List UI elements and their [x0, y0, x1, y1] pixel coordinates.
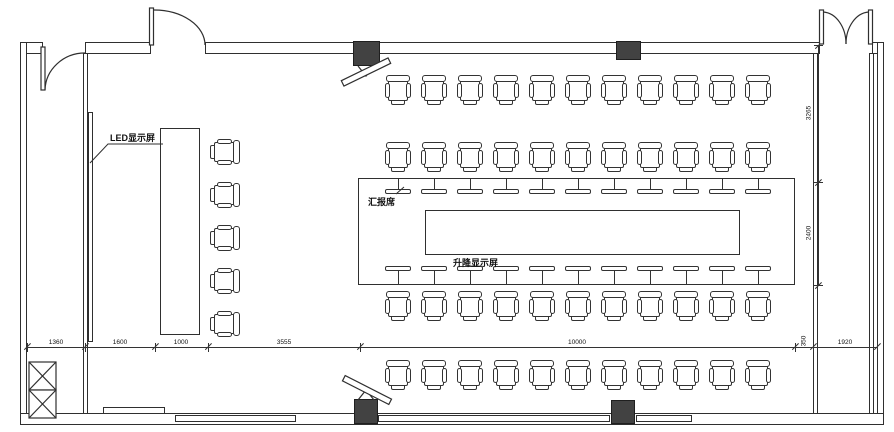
chair [493, 142, 519, 172]
chair-seat [532, 147, 552, 168]
chair-arm-l [673, 299, 678, 314]
chair-back [710, 142, 734, 149]
seat-unit-plate [673, 189, 699, 194]
seat-unit-plate [529, 266, 555, 271]
chair-arm-l [217, 139, 232, 144]
chair-arm-l [217, 225, 232, 230]
chair-arm-r [586, 83, 591, 98]
seat-unit-plate [601, 189, 627, 194]
chair-arm-r [658, 368, 663, 383]
chair-seat [748, 80, 768, 101]
led-screen-label: LED显示屏 [110, 131, 155, 144]
wall-right-outer [877, 42, 884, 425]
chair [529, 291, 555, 321]
chair [493, 291, 519, 321]
chair-arm-r [730, 83, 735, 98]
chair [601, 142, 627, 172]
chair-arm-r [658, 299, 663, 314]
chair-back [494, 360, 518, 367]
chair-arm-l [457, 368, 462, 383]
seat-unit-plate [421, 266, 447, 271]
chair-seat [640, 365, 660, 386]
cabinet-bottom-left [103, 407, 165, 414]
chair-arm-r [586, 299, 591, 314]
chair [673, 75, 699, 105]
chair-back [458, 291, 482, 298]
chair-arm-l [565, 368, 570, 383]
chair-arm-l [457, 299, 462, 314]
chair-arm-r [658, 83, 663, 98]
chair-arm-r [694, 150, 699, 165]
chair-arm-l [565, 150, 570, 165]
chair-seat [532, 296, 552, 317]
chair [565, 75, 591, 105]
seat-unit-plate [745, 266, 771, 271]
chair-arm-l [745, 83, 750, 98]
chair-arm-l [421, 368, 426, 383]
chair-arm-r [730, 368, 735, 383]
chair-back [674, 75, 698, 82]
chair-back [602, 142, 626, 149]
chair-back [566, 75, 590, 82]
chair-seat [748, 365, 768, 386]
chair-arm-r [550, 368, 555, 383]
chair-back [530, 291, 554, 298]
dimension-extension [85, 343, 86, 352]
chair-seat [604, 147, 624, 168]
dimension-label: 3265 [806, 106, 813, 120]
window-band-1 [175, 415, 296, 422]
chair-arm-r [514, 368, 519, 383]
chair [637, 142, 663, 172]
chair-seat [748, 147, 768, 168]
window-band-3 [636, 415, 692, 422]
chair [385, 142, 411, 172]
chair-back [233, 269, 240, 293]
chair-seat [388, 365, 408, 386]
chair [493, 360, 519, 390]
chair-arm-l [565, 83, 570, 98]
door-top-single-icon [150, 8, 206, 45]
floor-plan-drawing: LED显示屏 汇报席 升降显示屏 13601600100035551000035… [0, 0, 894, 432]
chair-arm-l [217, 311, 232, 316]
seat-unit-stem [434, 271, 435, 285]
dimension-extension [877, 343, 878, 352]
led-screen [88, 112, 93, 342]
chair [210, 268, 240, 294]
chair [421, 291, 447, 321]
chair-arm-l [637, 150, 642, 165]
chair-back [422, 75, 446, 82]
chair-arm-r [406, 368, 411, 383]
seat-unit-plate [601, 266, 627, 271]
chair-arm-l [421, 83, 426, 98]
chair-arm-r [586, 368, 591, 383]
chair-back [674, 360, 698, 367]
chair-arm-l [217, 182, 232, 187]
chair-arm-l [529, 368, 534, 383]
chair-back [422, 142, 446, 149]
chair-seat [388, 147, 408, 168]
chair-back [638, 142, 662, 149]
dimension-extension [155, 343, 156, 352]
chair-arm-l [601, 299, 606, 314]
chair-back [458, 75, 482, 82]
seat-unit-stem [650, 271, 651, 285]
chair-arm-r [442, 299, 447, 314]
chair-back [638, 75, 662, 82]
column-top-2 [616, 41, 641, 60]
reporter-seat-label: 汇报席 [368, 195, 395, 208]
dimension-label: 350 [801, 336, 808, 347]
chair-back [638, 360, 662, 367]
chair-seat [676, 147, 696, 168]
chair-seat [604, 296, 624, 317]
chair-arm-l [745, 368, 750, 383]
chair-back [233, 312, 240, 336]
dimension-extension [814, 285, 823, 286]
seat-unit-plate [421, 189, 447, 194]
chair-arm-r [730, 299, 735, 314]
chair [565, 360, 591, 390]
chair [421, 360, 447, 390]
shaft-icon [29, 362, 56, 418]
seat-unit-plate [529, 189, 555, 194]
chair [493, 75, 519, 105]
seat-unit-plate [385, 266, 411, 271]
chair [385, 360, 411, 390]
dimension-extension [814, 182, 823, 183]
chair-arm-r [766, 150, 771, 165]
seat-unit-stem [722, 271, 723, 285]
seat-unit-stem [758, 271, 759, 285]
chair [637, 360, 663, 390]
window-band-2 [378, 415, 610, 422]
seat-unit-plate [565, 189, 591, 194]
chair-seat [460, 365, 480, 386]
chair-back [386, 291, 410, 298]
chair [709, 142, 735, 172]
chair-seat [676, 80, 696, 101]
chair-seat [460, 80, 480, 101]
led-label-leader [90, 144, 163, 163]
chair-seat [424, 296, 444, 317]
seat-unit-plate [673, 266, 699, 271]
chair-arm-r [478, 299, 483, 314]
chair-arm-l [709, 150, 714, 165]
chair-arm-l [529, 150, 534, 165]
seat-unit-plate [709, 189, 735, 194]
chair-arm-l [421, 299, 426, 314]
chair-seat [640, 147, 660, 168]
chair-arm-l [385, 150, 390, 165]
chair-back [746, 291, 770, 298]
dimension-extension [795, 343, 796, 352]
chair-seat [748, 296, 768, 317]
chair-arm-l [745, 150, 750, 165]
chair [210, 225, 240, 251]
column-top-1 [353, 41, 380, 66]
chair-arm-r [622, 150, 627, 165]
chair-back [422, 360, 446, 367]
seat-unit-plate [565, 266, 591, 271]
chair-arm-l [745, 299, 750, 314]
chair [210, 182, 240, 208]
chair-seat [424, 147, 444, 168]
chair-seat [496, 147, 516, 168]
chair-seat [214, 142, 235, 162]
chair [421, 75, 447, 105]
chair-back [386, 360, 410, 367]
door-top-right-double-icon [820, 10, 873, 44]
chair-seat [568, 296, 588, 317]
seat-unit-stem [470, 271, 471, 285]
chair-arm-r [622, 83, 627, 98]
wall-top-b [85, 42, 151, 54]
chair-seat [424, 365, 444, 386]
chair [673, 291, 699, 321]
chair-back [674, 142, 698, 149]
chair-seat [676, 365, 696, 386]
chair-seat [496, 296, 516, 317]
chair [637, 75, 663, 105]
seat-unit-plate [493, 189, 519, 194]
chair [457, 291, 483, 321]
chair-arm-l [529, 299, 534, 314]
chair-arm-r [766, 368, 771, 383]
chair-seat [496, 365, 516, 386]
chair-arm-r [217, 246, 232, 251]
chair-arm-r [406, 299, 411, 314]
chair-arm-r [217, 160, 232, 165]
chair-arm-r [550, 299, 555, 314]
chair-arm-r [217, 289, 232, 294]
chair [745, 360, 771, 390]
chair-seat [568, 80, 588, 101]
chair-arm-r [442, 150, 447, 165]
chair-arm-r [550, 150, 555, 165]
chair-arm-r [658, 150, 663, 165]
wall-right-inner [869, 53, 874, 414]
chair [385, 75, 411, 105]
chair-arm-r [622, 368, 627, 383]
chair-arm-l [493, 299, 498, 314]
chair-arm-l [601, 83, 606, 98]
chair-seat [712, 296, 732, 317]
chair-back [530, 75, 554, 82]
wall-top-c [205, 42, 820, 54]
chair-back [422, 291, 446, 298]
chair-back [233, 226, 240, 250]
lift-display-panel [425, 210, 740, 255]
chair-arm-l [601, 150, 606, 165]
chair-arm-r [766, 299, 771, 314]
chair-arm-r [694, 299, 699, 314]
seat-unit-plate [637, 266, 663, 271]
seat-unit-stem [506, 271, 507, 285]
seat-unit-plate [457, 189, 483, 194]
chair-arm-l [709, 299, 714, 314]
chair-seat [676, 296, 696, 317]
chair [601, 291, 627, 321]
chair-arm-l [673, 83, 678, 98]
chair-back [566, 360, 590, 367]
chair-arm-l [529, 83, 534, 98]
wall-left-outer [20, 42, 27, 425]
lift-display-label: 升降显示屏 [453, 256, 498, 269]
chair-arm-l [637, 299, 642, 314]
seat-unit-stem [398, 271, 399, 285]
chair-arm-l [385, 299, 390, 314]
chair [210, 139, 240, 165]
chair-arm-l [457, 150, 462, 165]
chair-seat [388, 80, 408, 101]
chair-seat [214, 185, 235, 205]
chair-arm-r [766, 83, 771, 98]
chair-arm-r [478, 150, 483, 165]
chair-arm-l [637, 83, 642, 98]
chair-back [602, 291, 626, 298]
chair-back [746, 360, 770, 367]
chair-arm-r [586, 150, 591, 165]
chair-back [710, 75, 734, 82]
column-bottom-1 [354, 399, 378, 424]
chair-back [530, 360, 554, 367]
chair-seat [460, 147, 480, 168]
chair-back [638, 291, 662, 298]
chair-seat [214, 271, 235, 291]
chair [709, 75, 735, 105]
dimension-extension [813, 343, 814, 352]
chair [529, 142, 555, 172]
chair-seat [568, 147, 588, 168]
chair-seat [604, 365, 624, 386]
chair [601, 75, 627, 105]
chair [210, 311, 240, 337]
chair [457, 142, 483, 172]
dimension-extension [208, 343, 209, 352]
chair-arm-r [550, 83, 555, 98]
chair-back [233, 140, 240, 164]
seat-unit-stem [686, 271, 687, 285]
chair-arm-r [478, 368, 483, 383]
chair-seat [214, 228, 235, 248]
chair-arm-l [385, 83, 390, 98]
chair-back [566, 291, 590, 298]
chair-arm-r [406, 83, 411, 98]
chair-seat [640, 80, 660, 101]
chair [745, 142, 771, 172]
chair-arm-r [406, 150, 411, 165]
chair-seat [532, 80, 552, 101]
chair [637, 291, 663, 321]
dimension-extension [360, 343, 361, 352]
dimension-line-right [818, 45, 819, 285]
dimension-label: 10000 [568, 339, 586, 346]
chair-seat [712, 80, 732, 101]
chair-back [386, 142, 410, 149]
chair-arm-l [709, 368, 714, 383]
chair-seat [496, 80, 516, 101]
chair-arm-l [421, 150, 426, 165]
seat-unit-stem [542, 271, 543, 285]
chair-arm-l [709, 83, 714, 98]
chair-seat [388, 296, 408, 317]
chair-arm-l [565, 299, 570, 314]
chair-back [530, 142, 554, 149]
seat-unit-stem [578, 271, 579, 285]
chair-back [386, 75, 410, 82]
chair-back [494, 291, 518, 298]
chair [601, 360, 627, 390]
dimension-label: 3555 [277, 339, 291, 346]
chair-back [710, 360, 734, 367]
chair [529, 360, 555, 390]
chair-seat [460, 296, 480, 317]
chair-arm-r [442, 83, 447, 98]
chair-back [494, 75, 518, 82]
chair [709, 360, 735, 390]
chair-seat [604, 80, 624, 101]
chair-back [566, 142, 590, 149]
chair-back [458, 360, 482, 367]
chair [457, 75, 483, 105]
dimension-extension [814, 45, 823, 46]
chair-back [710, 291, 734, 298]
chair-back [494, 142, 518, 149]
chair-arm-r [622, 299, 627, 314]
chair-arm-r [514, 83, 519, 98]
chair [745, 291, 771, 321]
seat-unit-stem [614, 271, 615, 285]
chair-back [746, 75, 770, 82]
dimension-extension [27, 343, 28, 352]
chair-arm-l [385, 368, 390, 383]
chair-back [602, 75, 626, 82]
chair-seat [712, 147, 732, 168]
chair [673, 360, 699, 390]
chair-arm-r [478, 83, 483, 98]
dimension-label: 1360 [49, 339, 63, 346]
chair [421, 142, 447, 172]
chair-arm-l [457, 83, 462, 98]
chair [385, 291, 411, 321]
chair-arm-r [514, 150, 519, 165]
chair-arm-l [673, 368, 678, 383]
chair-arm-r [730, 150, 735, 165]
chair-arm-l [493, 83, 498, 98]
head-table [160, 128, 200, 335]
chair-seat [424, 80, 444, 101]
chair-arm-l [601, 368, 606, 383]
chair-back [458, 142, 482, 149]
chair-arm-r [217, 332, 232, 337]
dimension-label: 2400 [806, 226, 813, 240]
chair-arm-l [493, 150, 498, 165]
chair-arm-r [442, 368, 447, 383]
seat-unit-plate [709, 266, 735, 271]
dimension-label: 1000 [174, 339, 188, 346]
chair [529, 75, 555, 105]
chair-arm-l [637, 368, 642, 383]
chair-seat [214, 314, 235, 334]
chair-seat [712, 365, 732, 386]
chair-arm-r [217, 203, 232, 208]
chair [565, 291, 591, 321]
chair-arm-r [514, 299, 519, 314]
chair [457, 360, 483, 390]
chair-back [233, 183, 240, 207]
